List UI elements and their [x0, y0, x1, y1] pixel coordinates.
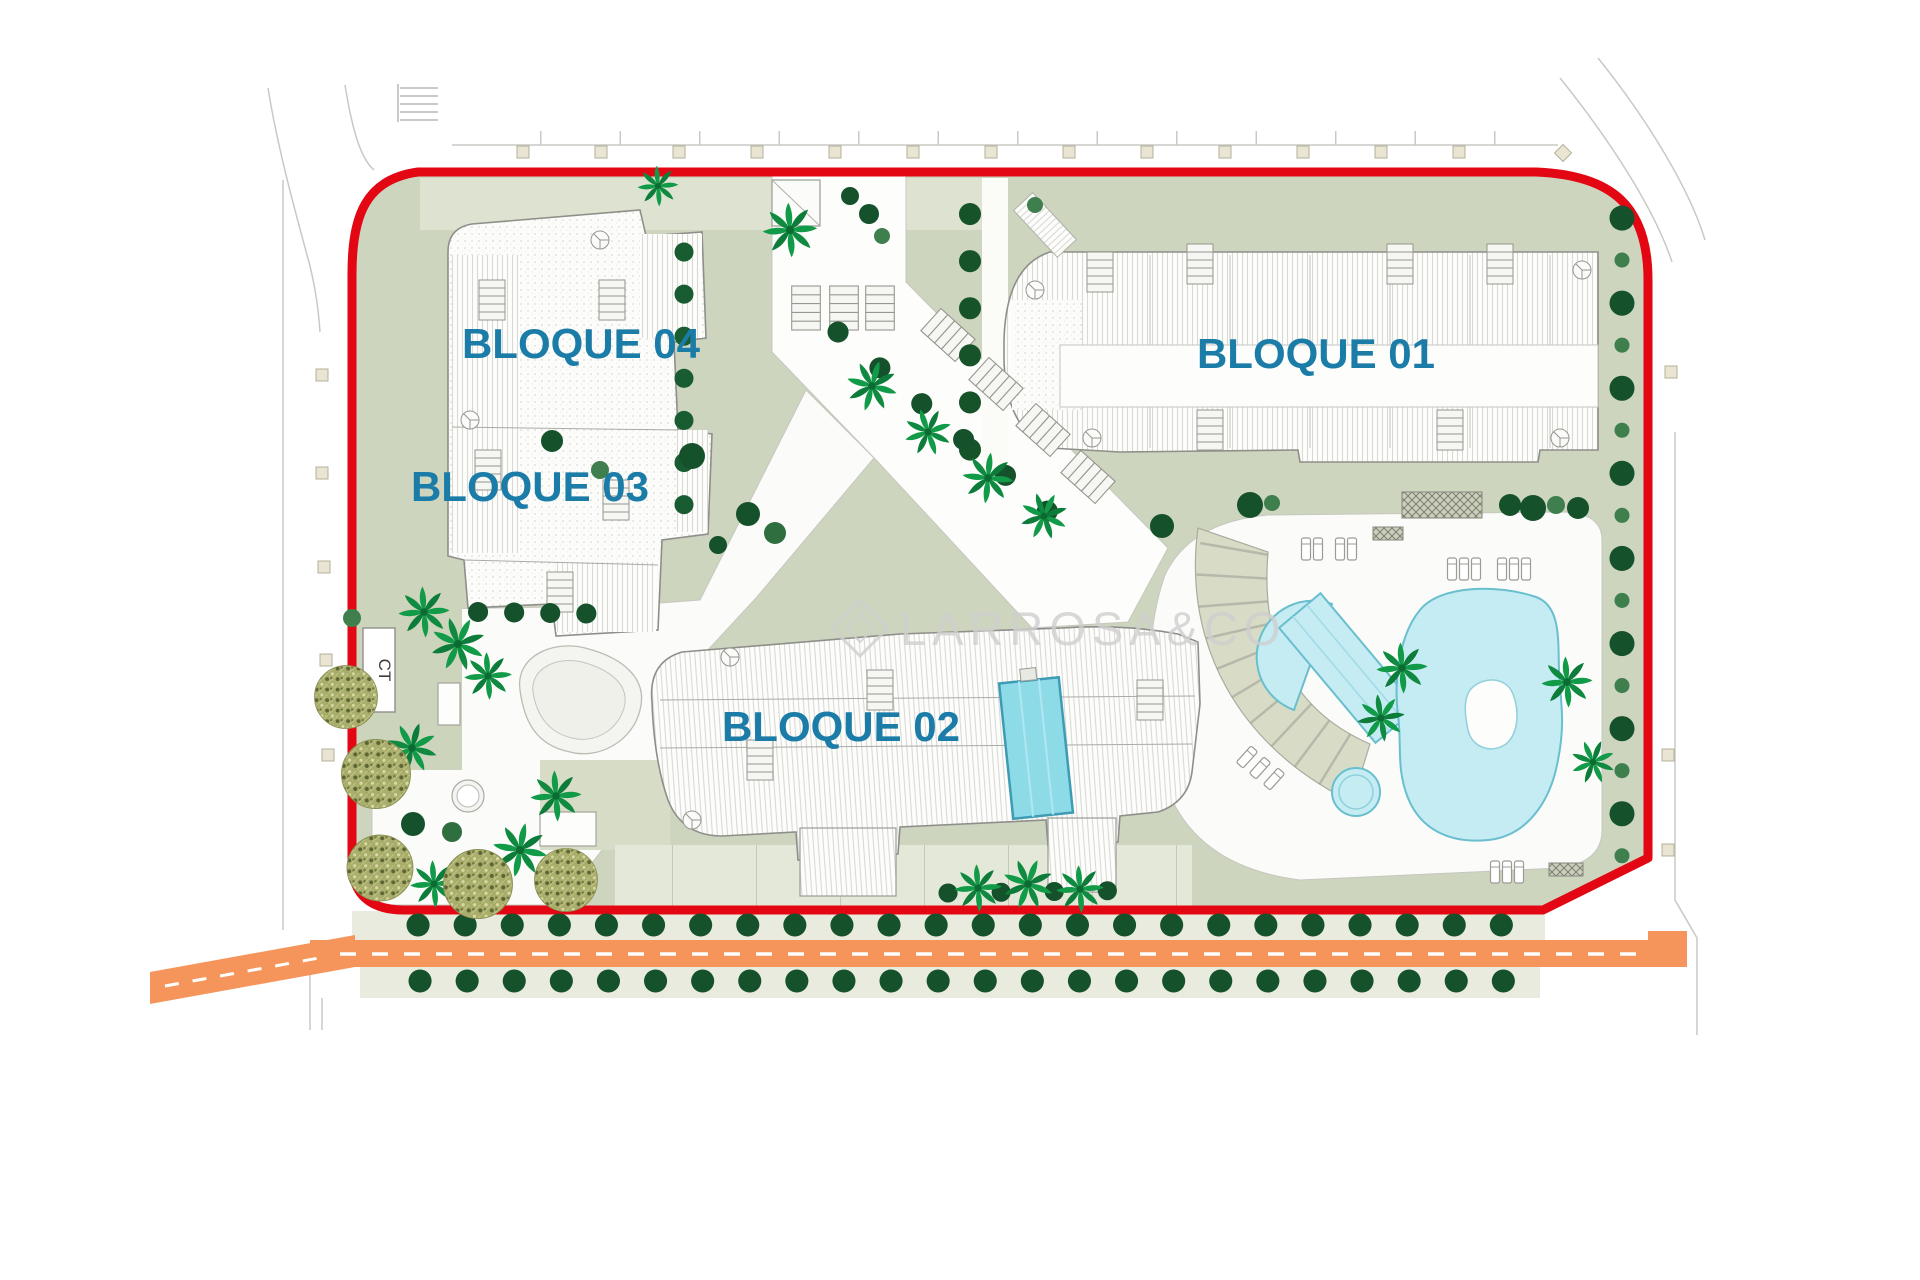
label-bloque-03: BLOQUE 03: [411, 463, 649, 510]
road-stub: [1648, 931, 1687, 967]
label-bloque-01: BLOQUE 01: [1197, 330, 1435, 377]
pool-island: [1465, 680, 1517, 749]
site-plan-drawing: LARROSA&CO BLOQUE 04 BLOQUE 03 BLOQUE 01…: [0, 0, 1920, 1280]
watermark-text: LARROSA&CO: [900, 602, 1286, 655]
site-plan-page: LARROSA&CO BLOQUE 04 BLOQUE 03 BLOQUE 01…: [0, 0, 1920, 1280]
label-ct: CT: [375, 659, 394, 682]
outside-parking-ladder: [398, 84, 438, 122]
watermark: LARROSA&CO: [832, 600, 1286, 656]
label-bloque-02: BLOQUE 02: [722, 703, 960, 750]
label-bloque-04: BLOQUE 04: [462, 320, 701, 367]
